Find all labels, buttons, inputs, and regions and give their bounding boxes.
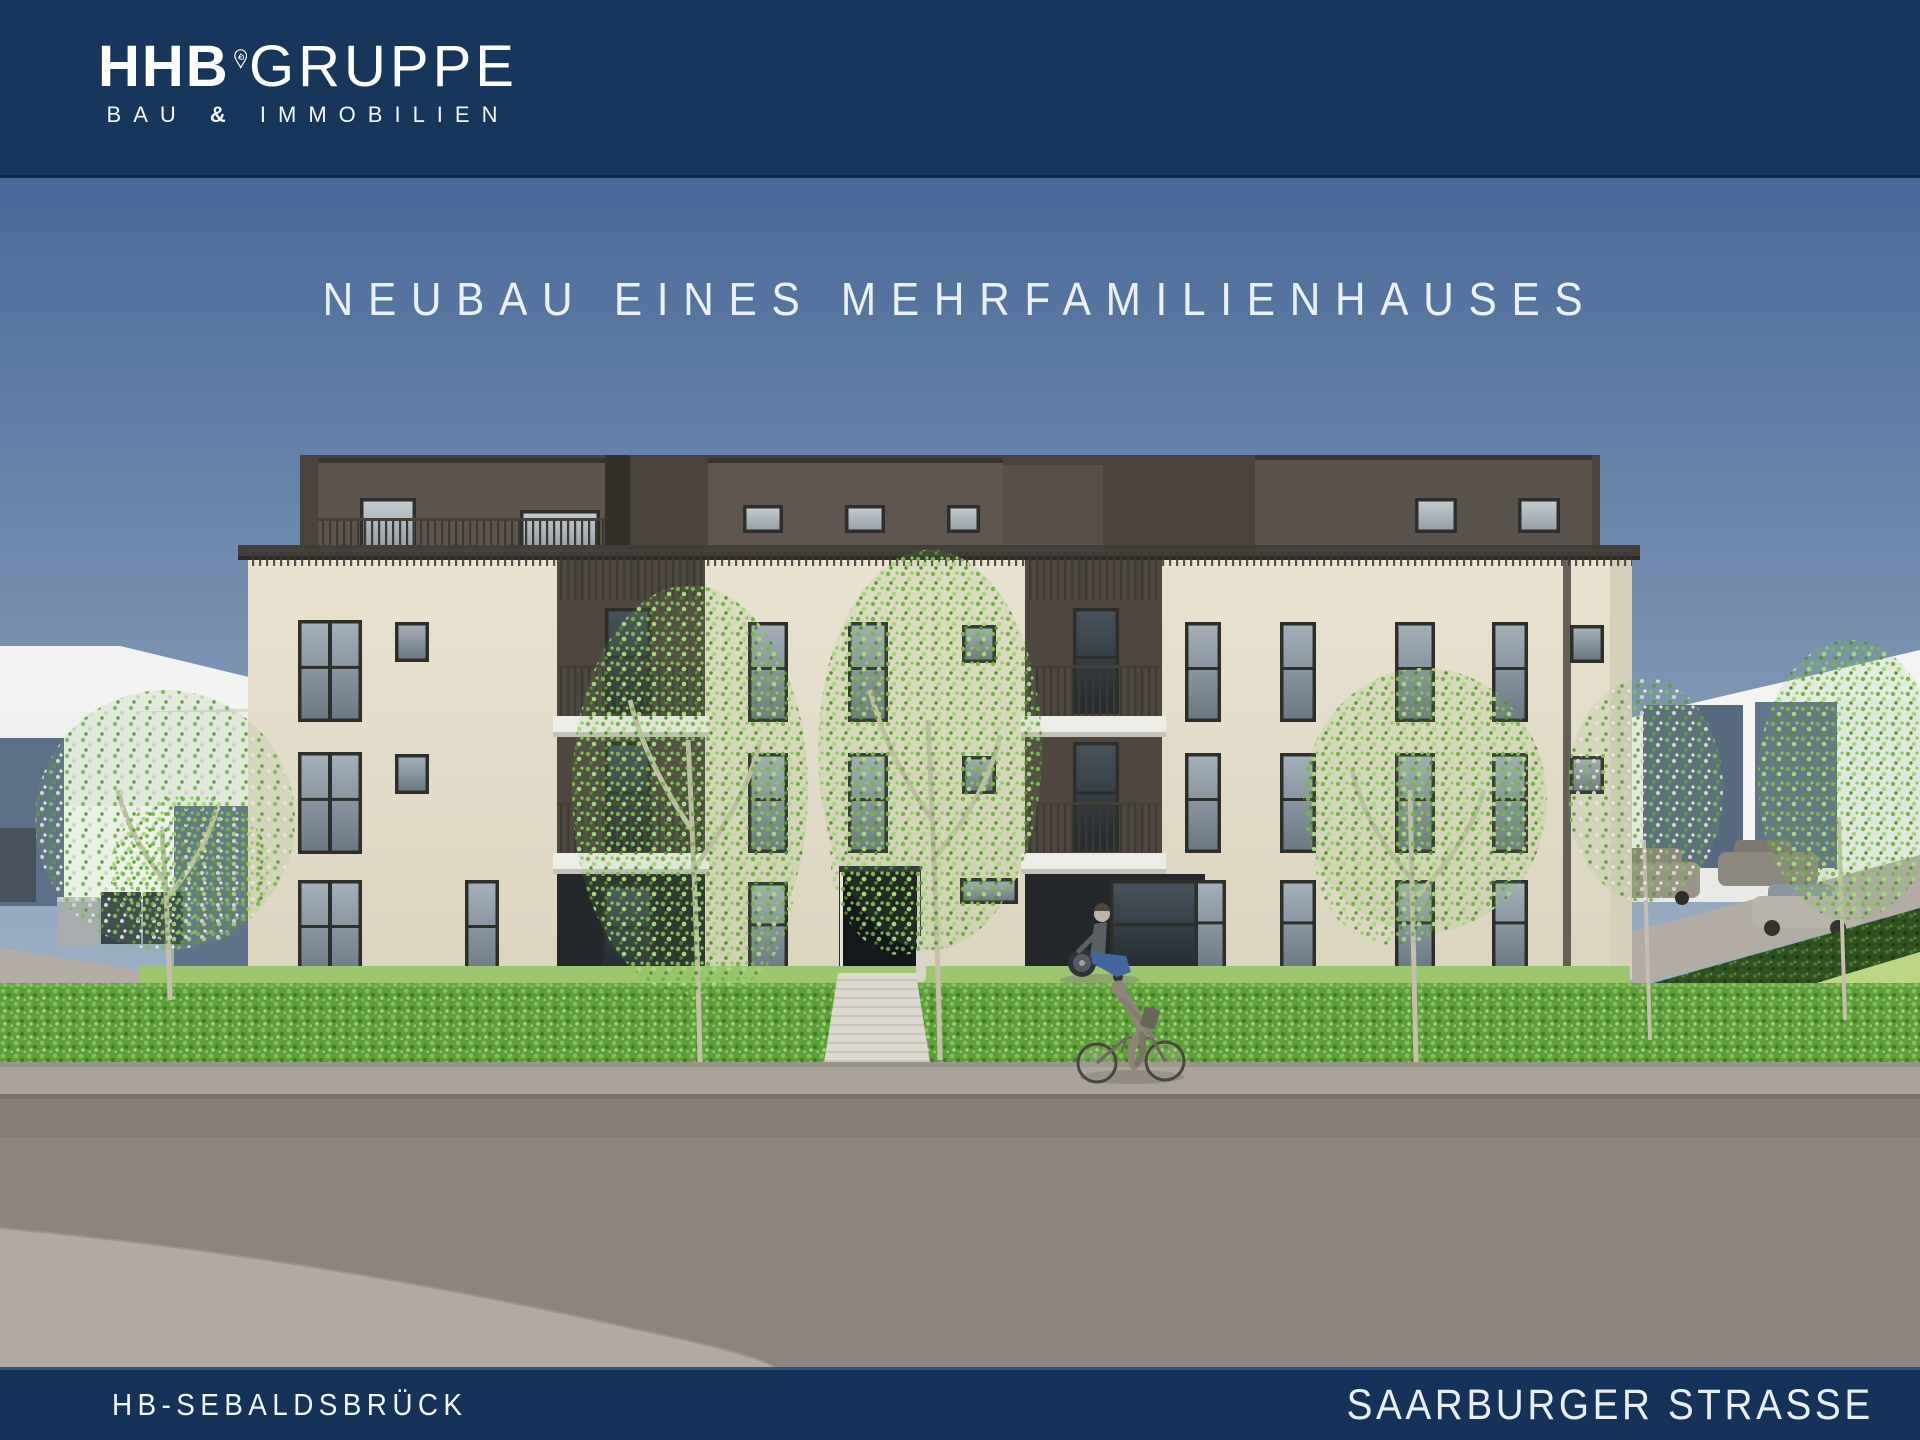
company-logo: HHB GRUPPE BAU & IMMOBILIEN	[98, 22, 518, 128]
real-estate-rendering-page: HHB GRUPPE BAU & IMMOBILIEN NEUBAU EINES…	[0, 0, 1920, 1440]
location-pin-house-icon	[234, 22, 247, 98]
dark-wall	[0, 828, 36, 902]
curb	[0, 1094, 1920, 1099]
page-title: NEUBAU EINES MEHRFAMILIENHAUSES	[77, 272, 1843, 326]
brand-name-light: GRUPPE	[249, 38, 518, 96]
footer-district-label: HB-SEBALDSBRÜCK	[112, 1387, 467, 1423]
brand-name-bold: HHB	[98, 38, 230, 96]
front-hedge	[0, 983, 1920, 1063]
footer-bar: HB-SEBALDSBRÜCK SAARBURGER STRASSE	[0, 1367, 1920, 1440]
architectural-rendering	[0, 0, 1920, 1440]
footer-street-label: SAARBURGER STRASSE	[1347, 1381, 1874, 1430]
brand-tagline: BAU & IMMOBILIEN	[98, 102, 518, 128]
header-bar: HHB GRUPPE BAU & IMMOBILIEN	[0, 0, 1920, 178]
entrance-path	[824, 973, 930, 1063]
